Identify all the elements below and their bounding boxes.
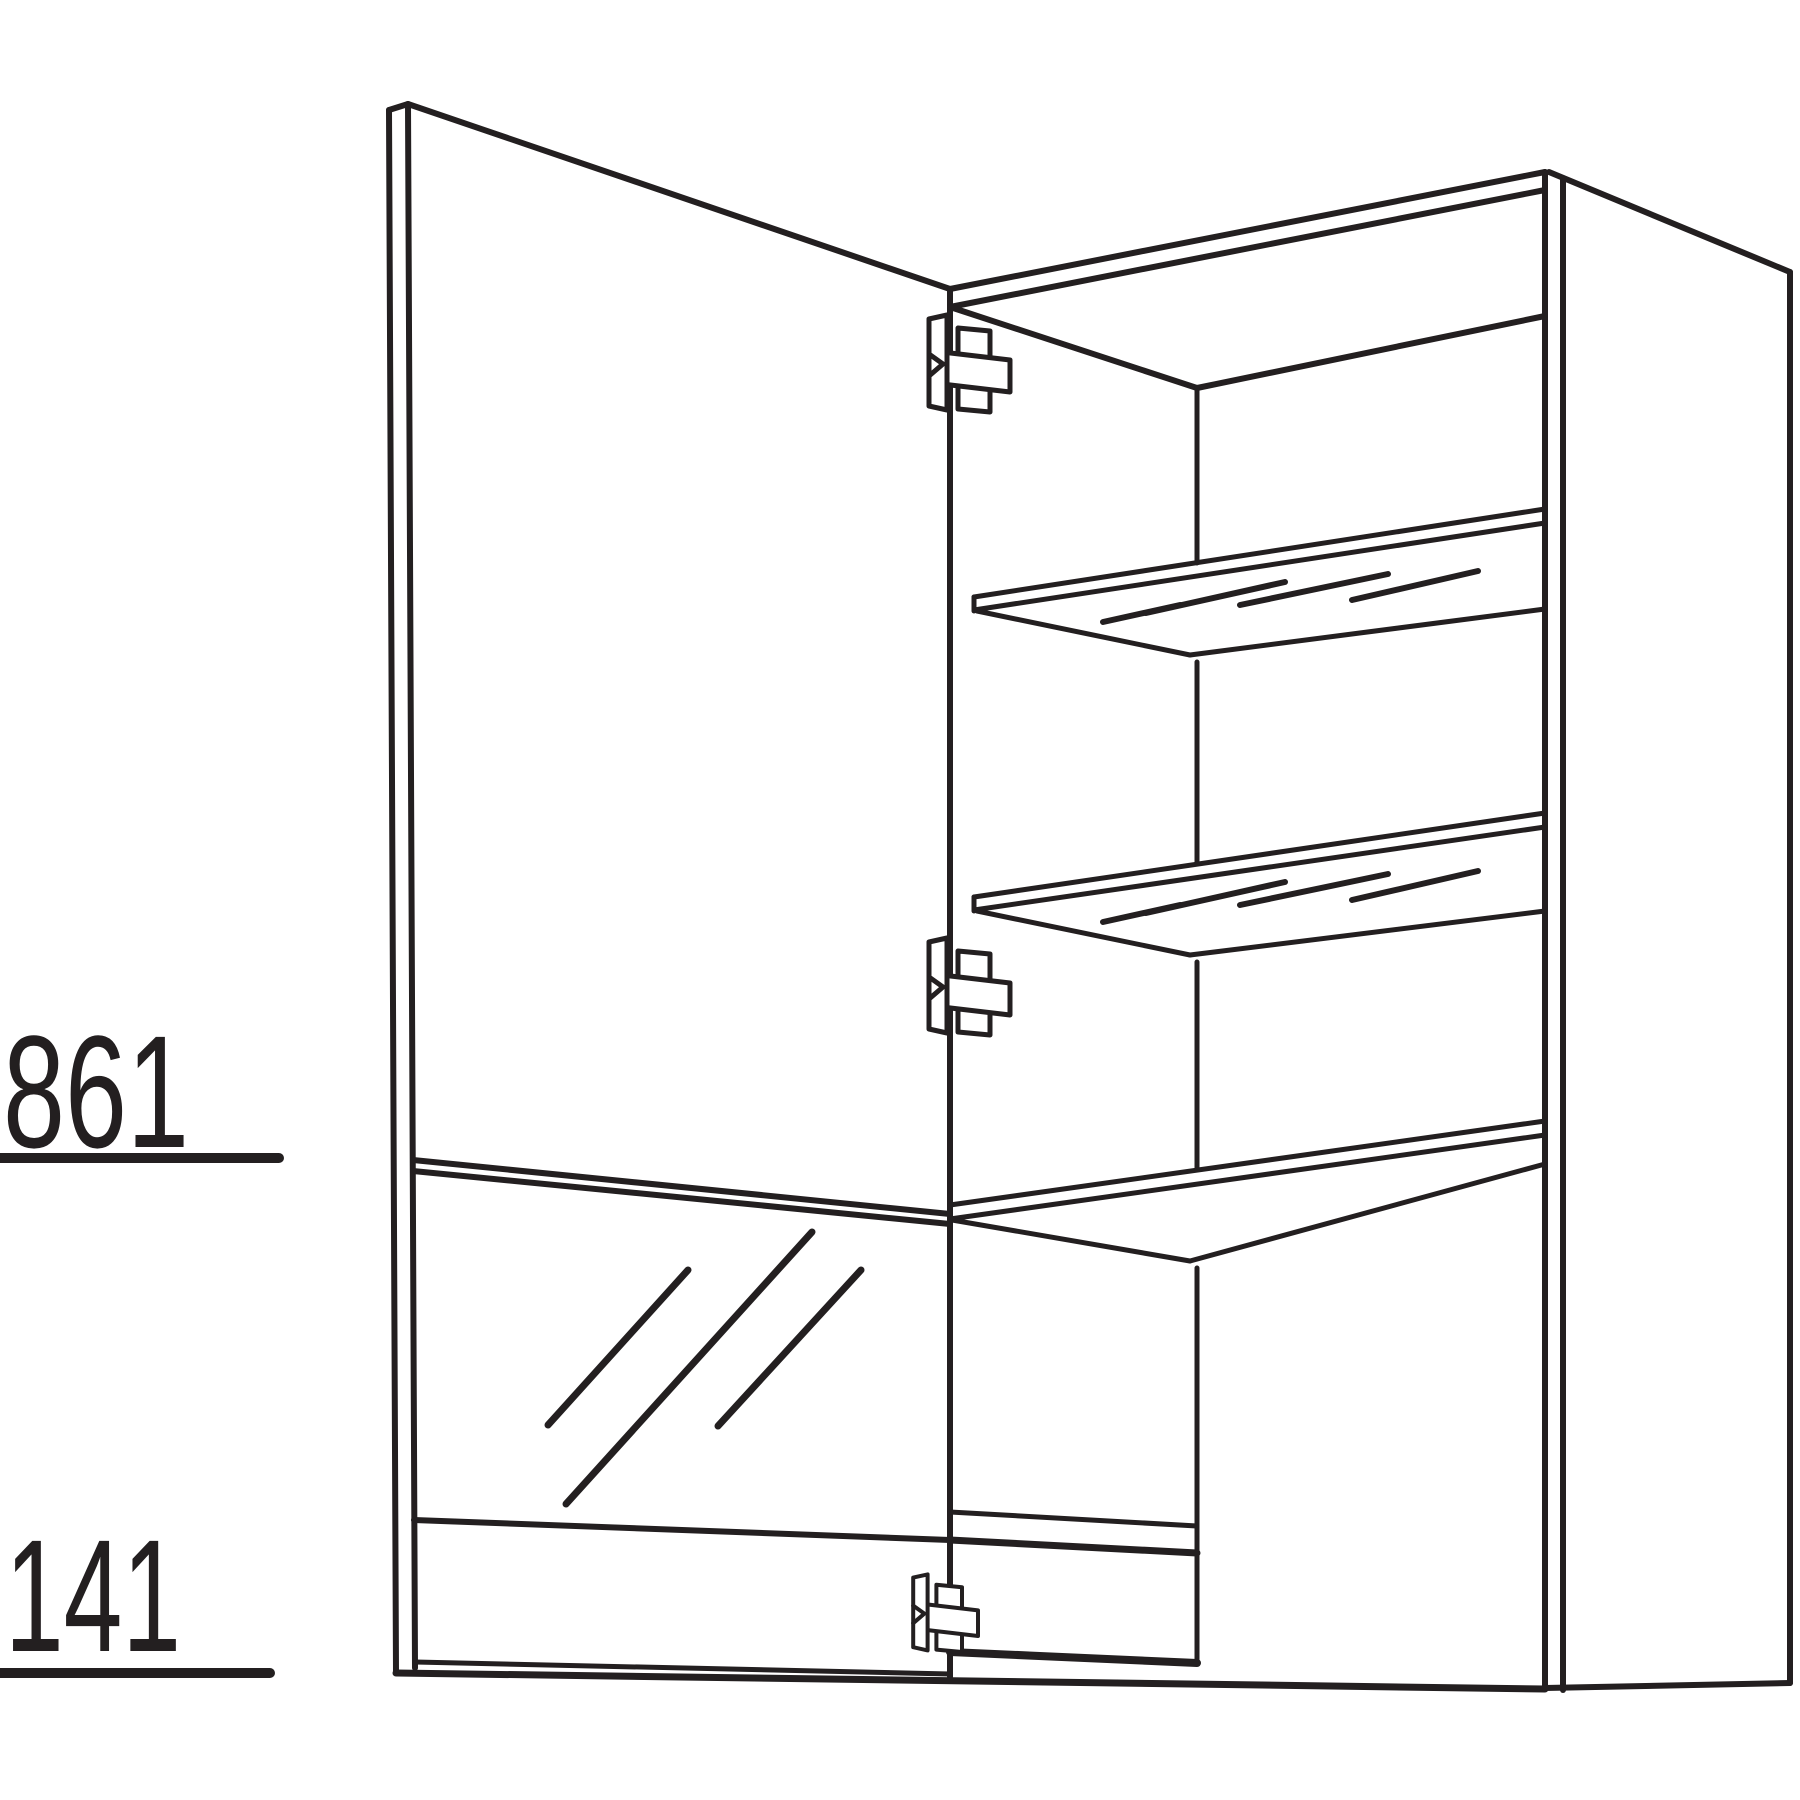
dimension-lower-value: 141 [5,1506,181,1685]
hinges [913,315,1010,1652]
lower-glass-shelf [974,813,1545,955]
shelf-bottom-front-edge [1190,911,1545,955]
shelf-bottom-front-edge [1190,609,1545,655]
door-division-upper-line [413,1160,950,1214]
door-division-lower-line [413,1171,950,1224]
glass-hatch-stroke [718,1270,861,1426]
upper-glass-shelf [974,509,1545,655]
shelf-top-back-edge [950,1121,1545,1205]
right-side-bottom-edge [1545,1683,1790,1688]
open-door [389,104,950,1677]
interior-floor-front-edge [950,1652,1197,1663]
glass-door-hatch [548,1232,861,1504]
drawing-lines: 861 141 [0,104,1790,1690]
cabinet-drawing-svg: 861 141 [0,0,1800,1800]
shelf-top-front-edge [974,523,1545,610]
shelf-top-back-edge [974,813,1545,897]
interior-back-top-edge [1197,316,1545,388]
lower-glass-door [414,1232,950,1674]
door-top-edge [408,104,950,289]
front-top-edge-outer [950,172,1545,289]
bottom-hinge-icon [913,1574,978,1652]
door-inner-left-edge [408,104,415,1668]
cabinet-technical-drawing: 861 141 [0,0,1800,1800]
shelf-left-edge [952,1220,1190,1261]
dimension-labels: 861 141 [0,1002,279,1685]
top-hinge-icon [929,315,1010,412]
interior-floor-left-junction-upper [950,1512,1197,1526]
door-outer-left-edge [389,110,396,1673]
interior-floor-left-junction-lower [950,1540,1197,1553]
middle-hinge-icon [929,938,1010,1035]
fixed-shelf [950,1121,1545,1261]
shelf-glass-hatch [1103,871,1478,922]
shelf-top-back-edge [974,509,1545,597]
glass-door-rail-top-edge [414,1520,950,1540]
shelf-top-front-edge [974,827,1545,910]
shelf-left-edge [977,611,1190,655]
shelf-glass-hatch [1103,571,1478,622]
glass-hatch-stroke [548,1270,688,1425]
front-top-edge-inner [950,190,1545,307]
shelf-top-front-edge [950,1135,1545,1219]
shelf-left-edge [977,911,1190,955]
right-side-top-edge [1549,172,1790,272]
bottom-front-edge [396,1673,1545,1689]
